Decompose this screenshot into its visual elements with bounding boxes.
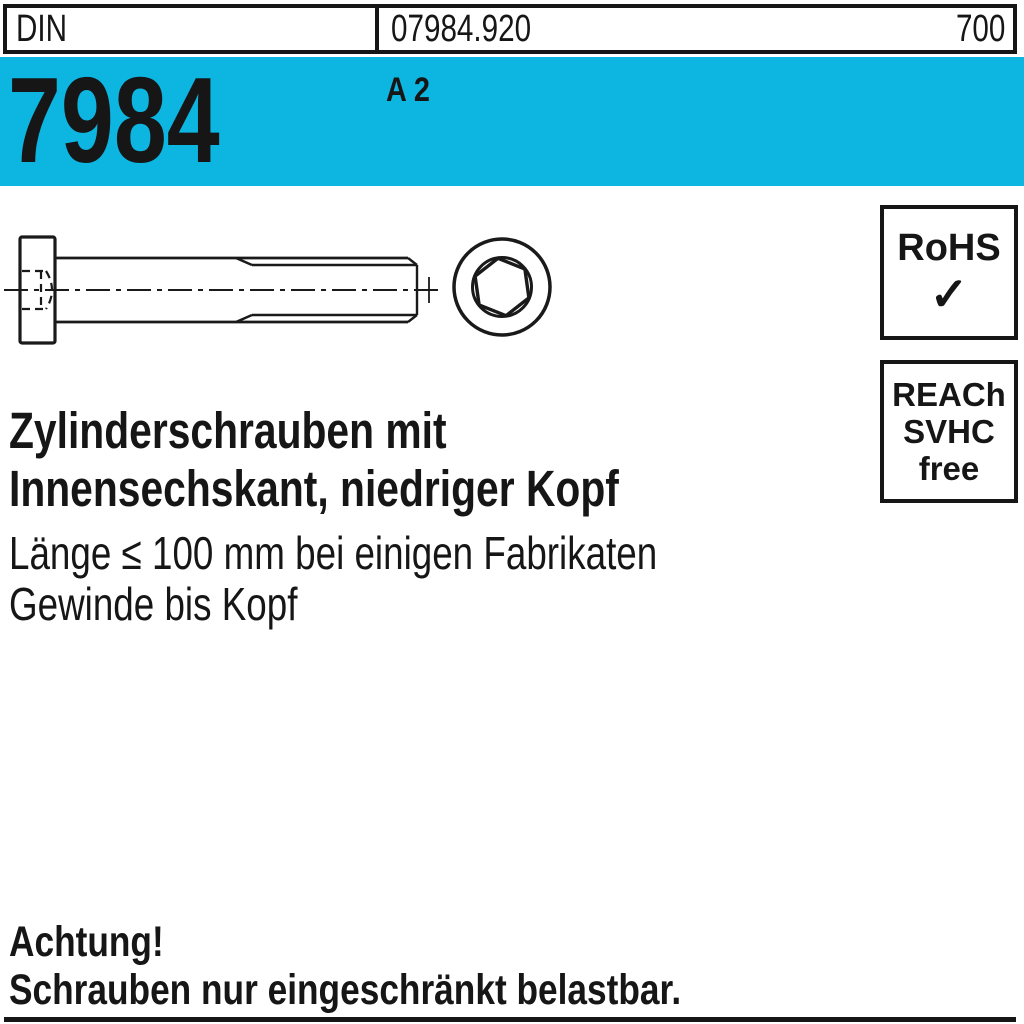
- warning-text: Schrauben nur eingeschränkt belastbar.: [9, 966, 681, 1014]
- product-title-line2: Innensechskant, niedriger Kopf: [9, 460, 619, 518]
- standard-number: 7984: [8, 57, 220, 183]
- rohs-badge: RoHS ✓: [880, 205, 1018, 340]
- warning-heading: Achtung!: [9, 918, 681, 966]
- catalog-page: DIN 07984.920 700 7984 A 2: [0, 0, 1024, 1024]
- product-notes: Länge ≤ 100 mm bei einigen Fabrikaten Ge…: [9, 528, 657, 630]
- din-label: DIN: [16, 8, 67, 51]
- technical-drawing: [0, 195, 560, 385]
- warning-block: Achtung! Schrauben nur eingeschränkt bel…: [9, 918, 681, 1014]
- article-number: 07984.920: [391, 8, 531, 51]
- page-number: 700: [956, 8, 1005, 51]
- reach-badge: REACh SVHC free: [880, 360, 1018, 503]
- screw-end-view: [454, 239, 550, 335]
- product-title: Zylinderschrauben mit Innensechskant, ni…: [9, 402, 619, 518]
- reach-line2: SVHC: [884, 413, 1014, 450]
- check-icon: ✓: [884, 271, 1014, 317]
- product-note-line1: Länge ≤ 100 mm bei einigen Fabrikaten: [9, 528, 657, 579]
- hex-socket-icon: [475, 258, 529, 315]
- material-grade: A 2: [386, 72, 430, 108]
- reach-line3: free: [884, 450, 1014, 487]
- header-cell-article: 07984.920 700: [379, 8, 1013, 50]
- rohs-label: RoHS: [884, 229, 1014, 267]
- head-outline-circle: [454, 239, 550, 335]
- socket-circle: [473, 258, 532, 317]
- reach-line1: REACh: [884, 376, 1014, 413]
- header-cell-din: DIN: [7, 8, 379, 50]
- product-note-line2: Gewinde bis Kopf: [9, 579, 657, 630]
- bottom-divider: [4, 1017, 1016, 1022]
- header-strip: DIN 07984.920 700: [3, 4, 1017, 54]
- product-title-line1: Zylinderschrauben mit: [9, 402, 619, 460]
